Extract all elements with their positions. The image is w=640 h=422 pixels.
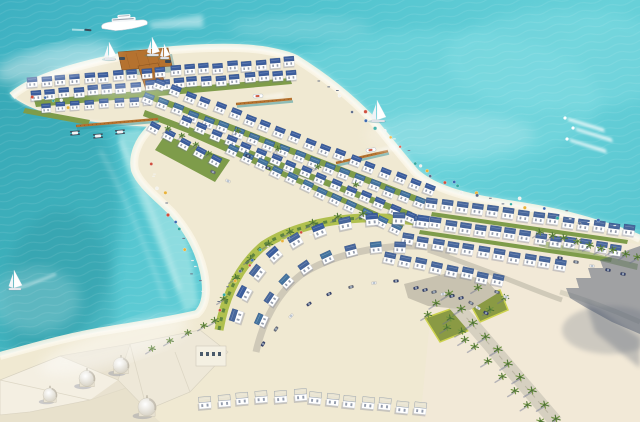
villa (364, 213, 379, 228)
villa (153, 67, 165, 79)
beach-umbrella (259, 248, 262, 251)
beach-umbrella (201, 291, 204, 292)
beach-umbrella (251, 259, 254, 262)
beach-umbrella (510, 203, 513, 206)
beach-umbrella (174, 221, 177, 224)
beach-umbrella (165, 202, 168, 203)
beach-umbrella (529, 211, 532, 212)
villa (68, 74, 80, 86)
villa (369, 241, 383, 255)
villa (255, 60, 267, 72)
beach-umbrella (75, 109, 78, 110)
beach-umbrella (248, 264, 251, 267)
beach-umbrella (475, 194, 478, 197)
beach-umbrella (502, 203, 505, 204)
beach-umbrella (226, 286, 229, 287)
beach-umbrella (300, 231, 303, 234)
villa (197, 63, 209, 75)
villa (283, 56, 295, 68)
beach-umbrella (518, 197, 521, 200)
beach-umbrella (31, 95, 34, 98)
beach-umbrella (194, 266, 197, 267)
villa (197, 396, 212, 411)
villa (57, 87, 69, 99)
villa (211, 63, 223, 75)
beach-umbrella (152, 176, 155, 177)
villa (253, 390, 268, 405)
beach-umbrella (569, 218, 572, 219)
scene-canvas: Aerial architectural rendering of a beac… (0, 0, 640, 422)
car (371, 281, 377, 284)
beach-umbrella (535, 207, 538, 208)
villa (125, 69, 137, 81)
moored-dinghy (165, 60, 171, 63)
window (206, 352, 209, 356)
villa (84, 100, 95, 111)
villa (141, 68, 153, 80)
villa (200, 76, 212, 88)
beach-umbrella (425, 169, 428, 172)
beach-umbrella (351, 111, 354, 114)
resort-aerial-rendering: Aerial architectural rendering of a beac… (0, 0, 640, 422)
villa (269, 58, 281, 70)
beach-umbrella (364, 119, 367, 122)
beach-umbrella (460, 191, 464, 195)
villa (228, 74, 240, 86)
beach-umbrella (183, 248, 186, 251)
beach-umbrella (604, 227, 607, 228)
fog-patch (230, 16, 370, 40)
moored-dinghy (119, 57, 125, 60)
fog-patch (365, 113, 535, 157)
beach-umbrella (309, 234, 312, 235)
fog-patch (88, 82, 172, 102)
beach-umbrella (223, 293, 226, 296)
beach-umbrella (597, 218, 600, 221)
beach-umbrella (66, 106, 69, 109)
window (200, 352, 203, 356)
villa (169, 65, 181, 77)
beach-umbrella (327, 86, 330, 87)
beach-umbrella (364, 110, 368, 114)
beach-umbrella (456, 184, 459, 187)
beach-umbrella (443, 181, 446, 184)
beach-umbrella (150, 162, 153, 165)
beach-umbrella (613, 225, 616, 226)
beach-umbrella (191, 260, 194, 261)
villa (226, 61, 238, 73)
villa (73, 87, 85, 99)
beach-umbrella (199, 280, 202, 281)
beach-umbrella (281, 239, 284, 242)
beach-umbrella (52, 100, 55, 103)
beach-umbrella (338, 94, 341, 97)
beach-umbrella (336, 90, 339, 91)
villa (273, 390, 288, 405)
beach-umbrella (565, 210, 568, 211)
beach-umbrella (578, 222, 581, 225)
beach-umbrella (453, 180, 456, 183)
beach-umbrella (60, 99, 63, 102)
window (218, 352, 221, 356)
beach-umbrella (166, 213, 169, 216)
villa (234, 392, 249, 407)
villa (285, 70, 297, 82)
beach-umbrella (317, 80, 320, 81)
beach-umbrella (543, 207, 546, 210)
beach-umbrella (523, 206, 526, 209)
beach-umbrella (239, 270, 242, 273)
beach-umbrella (182, 238, 185, 239)
villa (217, 394, 232, 409)
villa (97, 72, 109, 84)
beach-umbrella (587, 222, 590, 223)
villa (55, 102, 66, 113)
beach-umbrella (44, 96, 47, 99)
villa (293, 388, 308, 403)
villa (240, 61, 252, 73)
villa (112, 70, 124, 82)
villa (271, 71, 283, 83)
villa (69, 101, 80, 112)
beach-umbrella (217, 301, 220, 302)
beach-umbrella (556, 216, 559, 219)
beach-umbrella (155, 187, 158, 190)
beach-umbrella (153, 174, 156, 175)
beach-umbrella (178, 227, 181, 230)
villa (40, 103, 51, 114)
villa (257, 71, 269, 83)
villa (244, 72, 256, 84)
beach-umbrella (233, 279, 236, 282)
beach-umbrella (164, 191, 167, 194)
villa (391, 212, 405, 226)
beach-umbrella (218, 309, 221, 312)
villa (393, 242, 406, 255)
villa (84, 73, 96, 85)
beach-umbrella (287, 237, 290, 240)
villa (185, 76, 197, 88)
villa (183, 64, 195, 76)
beach-umbrella (429, 175, 432, 178)
window (212, 352, 215, 356)
villa (215, 76, 227, 88)
beach-umbrella (350, 102, 353, 103)
car (393, 279, 398, 282)
beach-umbrella (414, 162, 417, 165)
beach-umbrella (267, 246, 270, 247)
beach-umbrella (190, 273, 193, 274)
beach-umbrella (489, 198, 492, 199)
beach-umbrella (419, 164, 422, 167)
